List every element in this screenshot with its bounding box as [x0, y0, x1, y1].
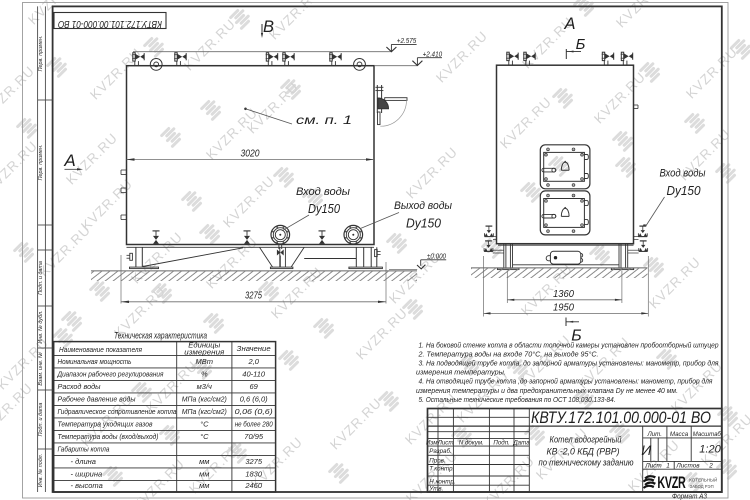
svg-text:Вход воды: Вход воды	[660, 168, 706, 180]
svg-text:+2.575: +2.575	[397, 36, 417, 45]
svg-text:Формат А3: Формат А3	[672, 493, 707, 500]
svg-text:м3/ч: м3/ч	[197, 382, 212, 391]
svg-text:В: В	[263, 18, 274, 36]
svg-text:мм: мм	[199, 470, 209, 479]
svg-text:40-110: 40-110	[242, 370, 266, 379]
svg-text:°С: °С	[200, 432, 209, 441]
svg-text:3275: 3275	[245, 291, 262, 302]
svg-text:Выход воды: Выход воды	[394, 200, 452, 212]
svg-text:1950: 1950	[553, 303, 574, 314]
svg-text:по техническому заданию: по техническому заданию	[539, 458, 634, 468]
svg-text:Номинальная мощность: Номинальная мощность	[58, 357, 132, 366]
svg-text:4. На отводящей трубе котла ,: 4. На отводящей трубе котла ,до запорной…	[419, 377, 713, 386]
svg-text:МПа (кгс/см2): МПа (кгс/см2)	[182, 407, 227, 416]
svg-text:70/95: 70/95	[244, 432, 264, 441]
svg-text:Перв. примен.: Перв. примен.	[38, 36, 44, 72]
svg-text:Перв. примен.: Перв. примен.	[38, 145, 44, 181]
svg-text:Значение: Значение	[237, 344, 271, 353]
svg-text:Взам. инв. №: Взам. инв. №	[38, 352, 44, 386]
svg-text:Масса: Масса	[670, 431, 689, 438]
svg-text:Подп. и дата: Подп. и дата	[38, 261, 44, 295]
svg-text:не более 280: не более 280	[235, 420, 274, 429]
svg-text:±0.000: ±0.000	[427, 251, 446, 260]
svg-text:Расход воды: Расход воды	[58, 382, 101, 391]
svg-text:Т.контр.: Т.контр.	[429, 466, 454, 473]
svg-text:0,06 (0,6): 0,06 (0,6)	[235, 407, 274, 416]
svg-text:Дата: Дата	[512, 439, 530, 446]
svg-text:69: 69	[250, 382, 259, 391]
svg-text:1360: 1360	[553, 289, 574, 300]
svg-text:Dy150: Dy150	[406, 216, 441, 230]
svg-text:1: 1	[666, 462, 670, 469]
svg-text:мм: мм	[199, 481, 209, 490]
svg-text:Наименование показателя: Наименование показателя	[59, 345, 142, 354]
svg-text:Техническая характеристика: Техническая характеристика	[114, 331, 207, 341]
svg-text:1:20: 1:20	[699, 443, 721, 455]
svg-text:Н.контр.: Н.контр.	[429, 479, 455, 486]
svg-text:мм: мм	[199, 457, 209, 466]
svg-text:Лист: Лист	[437, 439, 454, 446]
svg-text:KVZR: KVZR	[657, 474, 685, 492]
svg-text:Температура уходящих газов: Температура уходящих газов	[58, 420, 153, 429]
svg-text:измерения температуры.: измерения температуры.	[416, 368, 506, 377]
svg-text:Лит.: Лит.	[646, 431, 662, 438]
svg-text:2: 2	[708, 462, 713, 469]
svg-text:1830: 1830	[245, 470, 263, 479]
svg-text:Масштаб: Масштаб	[693, 431, 721, 438]
svg-text:2. Температура воды на входе: 2. Температура воды на входе 70°С, на вы…	[418, 349, 599, 358]
svg-text:Утв.: Утв.	[428, 486, 443, 493]
svg-text:- ширина: - ширина	[71, 470, 103, 479]
svg-text:°С: °С	[200, 420, 209, 429]
svg-text:- длина: - длина	[71, 457, 96, 466]
svg-text:Гидравлическое сопротивление к: Гидравлическое сопротивление котла	[58, 407, 177, 416]
svg-text:Dy150: Dy150	[667, 184, 701, 198]
svg-text:Подп. и дата: Подп. и дата	[38, 403, 44, 437]
svg-text:2,0: 2,0	[247, 357, 259, 366]
svg-text:КВ -2,0 КБД (РВР): КВ -2,0 КБД (РВР)	[547, 446, 620, 456]
svg-text:А: А	[63, 151, 75, 170]
svg-text:Б: Б	[576, 36, 586, 53]
svg-text:Котел водогрейный: Котел водогрейный	[550, 435, 622, 445]
svg-text:Инв. № подл.: Инв. № подл.	[38, 454, 44, 487]
svg-text:Рабочее давление воды: Рабочее давление воды	[58, 395, 136, 404]
svg-text:А: А	[563, 15, 575, 33]
svg-text:Лист: Лист	[644, 462, 662, 469]
svg-text:1. На боковой стенке котла в: 1. На боковой стенке котла в области топ…	[419, 340, 719, 349]
svg-text:Dy150: Dy150	[308, 202, 340, 216]
svg-text:КОТЕЛЬНЫЙ: КОТЕЛЬНЫЙ	[689, 475, 717, 482]
svg-text:Пров.: Пров.	[429, 457, 445, 464]
svg-text:измерения: измерения	[184, 348, 224, 357]
svg-text:Подп.: Подп.	[493, 439, 509, 446]
svg-text:Листов: Листов	[675, 462, 700, 469]
svg-text:Габариты котла: Габариты котла	[58, 445, 110, 454]
svg-text:МПа (кгс/см2): МПа (кгс/см2)	[182, 395, 227, 404]
svg-text:3. На подводящей трубе котла,: 3. На подводящей трубе котла, до запорно…	[419, 359, 719, 368]
svg-text:Температура воды (вход/выход): Температура воды (вход/выход)	[58, 432, 159, 441]
svg-text:Инв. № дубл.: Инв. № дубл.	[38, 310, 44, 343]
svg-text:Разраб.: Разраб.	[429, 448, 451, 455]
svg-text:%: %	[201, 370, 208, 379]
svg-text:Вход воды: Вход воды	[296, 186, 350, 198]
svg-text:измерения температуры и два пр: измерения температуры и два предохраните…	[416, 386, 678, 395]
svg-text:МВт: МВт	[196, 357, 214, 366]
svg-text:см. п. 1: см. п. 1	[296, 113, 352, 127]
svg-text:КВТУ.172.101.00.000-01 ВО: КВТУ.172.101.00.000-01 ВО	[58, 18, 162, 29]
svg-text:3020: 3020	[241, 147, 260, 159]
svg-text:КВТУ.172.101.00.000-01 ВО: КВТУ.172.101.00.000-01 ВО	[531, 409, 711, 427]
svg-text:2460: 2460	[244, 481, 263, 490]
svg-text:Диапазон рабочего регулировани: Диапазон рабочего регулирования	[57, 370, 164, 379]
svg-text:И: И	[641, 442, 652, 458]
svg-text:N докум.: N докум.	[459, 439, 484, 446]
svg-text:5. Остальные технические треб: 5. Остальные технические требования по О…	[419, 395, 616, 404]
svg-text:ЗАВОД РЭП: ЗАВОД РЭП	[690, 484, 714, 489]
svg-text:0,6 (6,0): 0,6 (6,0)	[240, 395, 268, 404]
svg-text:+2.410: +2.410	[423, 49, 443, 58]
svg-text:- высота: - высота	[71, 481, 103, 490]
svg-text:3275: 3275	[245, 457, 263, 466]
